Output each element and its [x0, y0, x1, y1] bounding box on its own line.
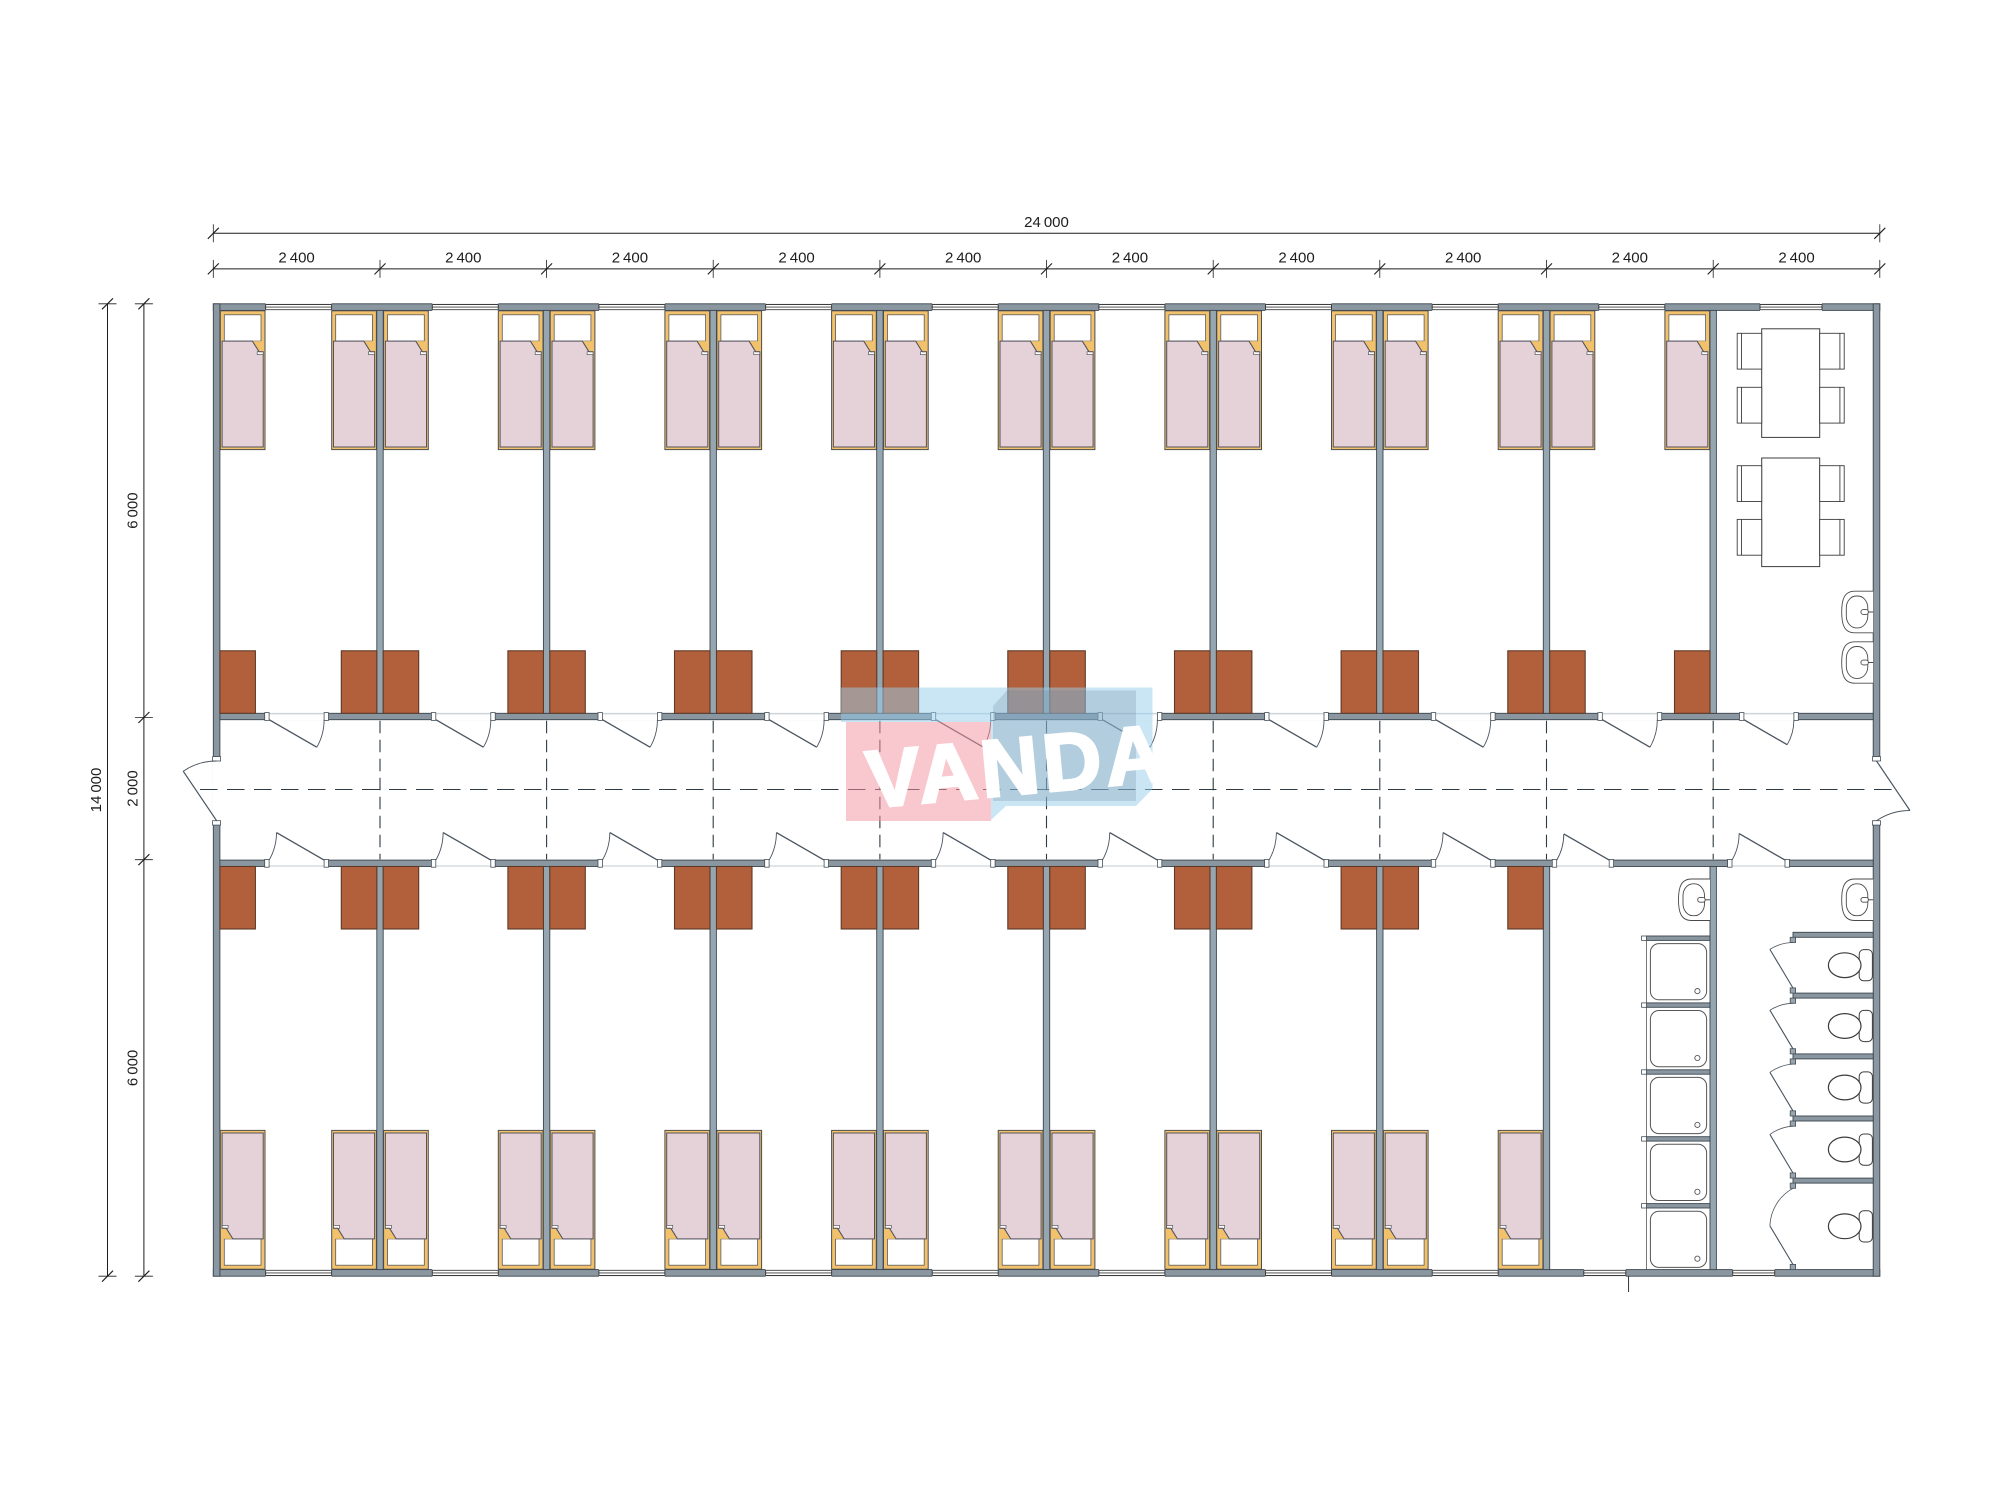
- svg-text:2 400: 2 400: [445, 249, 481, 266]
- svg-text:6 000: 6 000: [124, 492, 141, 528]
- svg-text:2 400: 2 400: [1278, 249, 1314, 266]
- svg-text:2 400: 2 400: [1778, 249, 1814, 266]
- svg-text:2 400: 2 400: [945, 249, 981, 266]
- svg-text:2 400: 2 400: [1612, 249, 1648, 266]
- svg-text:2 400: 2 400: [278, 249, 314, 266]
- svg-text:2 000: 2 000: [124, 770, 141, 806]
- svg-text:2 400: 2 400: [778, 249, 814, 266]
- svg-text:24 000: 24 000: [1024, 214, 1069, 231]
- svg-text:14 000: 14 000: [88, 768, 105, 813]
- svg-text:2 400: 2 400: [1112, 249, 1148, 266]
- svg-text:2 400: 2 400: [1445, 249, 1481, 266]
- svg-text:2 400: 2 400: [612, 249, 648, 266]
- svg-text:6 000: 6 000: [124, 1050, 141, 1086]
